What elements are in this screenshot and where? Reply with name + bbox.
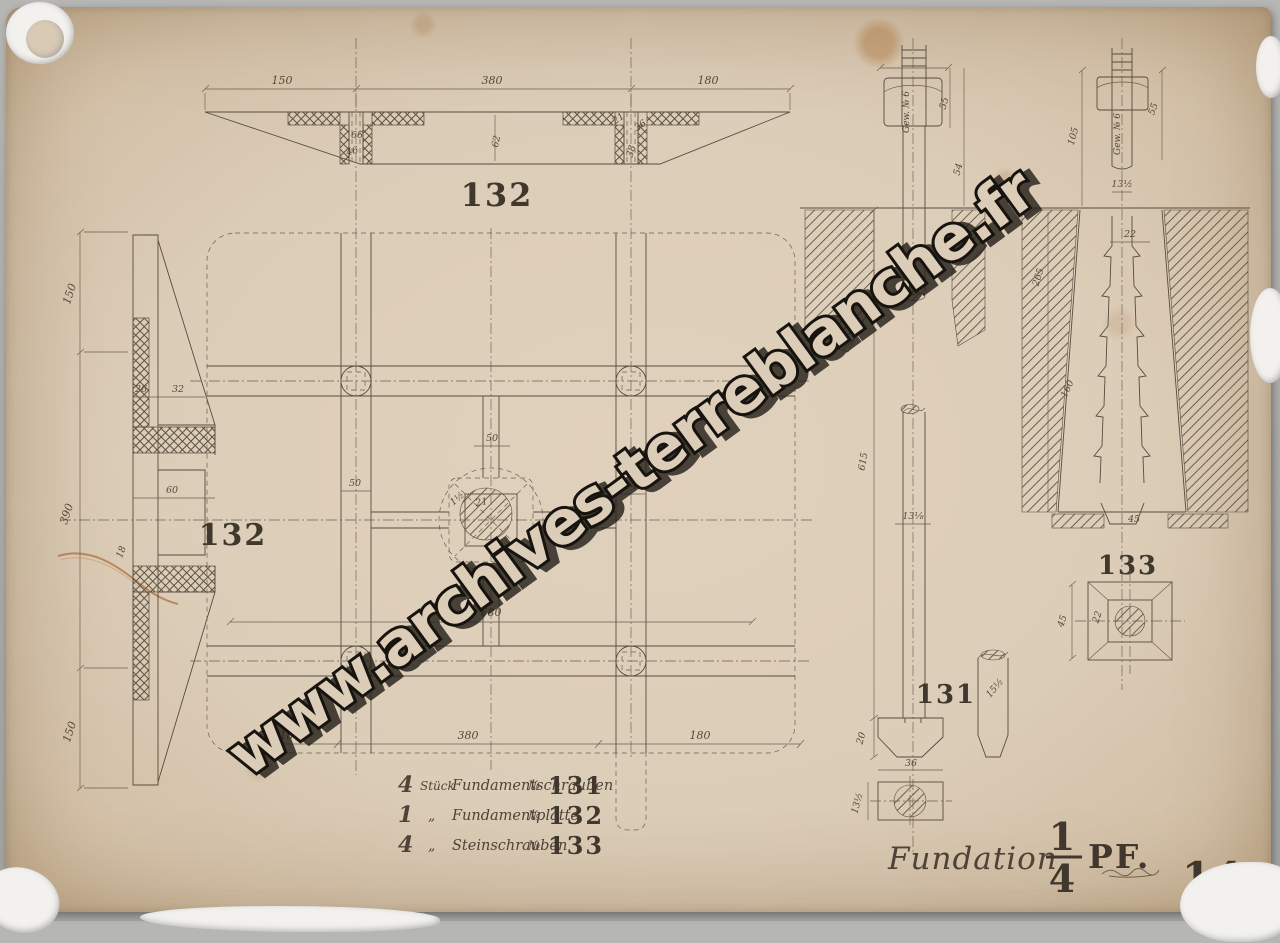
dim-50-center: 50 [486,433,498,444]
dim-150: 150 [272,74,293,87]
dim-55-133: 55 [1146,102,1160,117]
dim-66: 66 [351,130,363,141]
part-label-131: 131 [916,680,976,710]
photo-corner-top-left-hole [26,20,64,58]
row3-no: № [527,839,540,854]
dim-18: 18 [114,545,128,560]
part-label-132-plan: 132 [199,518,268,553]
dim-15-2: 15½ [984,677,1006,700]
dim-62: 62 [490,134,503,148]
parts-schedule: 4 Stück Fundamentschrauben № 131 1 „ Fun… [398,771,613,860]
scale-denominator: 4 [1049,856,1077,901]
dim-54-131: 54 [952,162,966,177]
dim-180: 180 [698,74,719,87]
schedule-row: 4 „ Steinschrauben № 133 [398,831,604,860]
dim-180-right: 180 [690,729,711,742]
dim-13-2-133: 13½ [1111,179,1132,190]
scale-unit: PF. [1088,837,1150,876]
tear-bottom-edge [140,906,440,932]
scale-numerator: 1 [1049,814,1077,859]
row2-qty: 1 [398,802,413,828]
row2-unit: „ [428,808,435,824]
thread-note-131: Gew. № 6 [902,91,912,133]
schedule-row: 4 Stück Fundamentschrauben № 131 [398,771,613,800]
dim-38: 38 [625,144,639,159]
scanned-drawing-page: { "watermark": { "text": "www.archives-t… [0,0,1280,921]
drawing-canvas: 150 380 180 66 46 62 21 36 38 132 150 39… [0,0,1280,921]
dim-32: 32 [172,384,184,395]
dim-55-131: 55 [938,96,952,111]
row2-no: № [527,809,540,824]
part-label-132-section: 132 [461,176,534,214]
dim-150-bottom: 150 [60,720,79,744]
dim-390: 390 [57,502,76,526]
row1-qty: 4 [398,772,413,798]
stone-screw-plan-view: 45 22 [1055,570,1185,674]
dim-45-plan: 45 [1055,614,1070,630]
dim-26: 26 [134,384,147,395]
dim-13-2-131: 13½ [850,792,866,815]
thread-note-133: Gew. № 6 [1113,113,1123,155]
drawing-title: Fundation. [887,841,1069,877]
row3-unit: „ [428,838,435,854]
schedule-row: 1 „ Fundamentplatte № 132 [398,801,604,830]
dim-380: 380 [482,74,503,87]
dim-45-bottom: 45 [1127,514,1140,525]
dim-22-top: 22 [1123,229,1136,240]
row2-num: 132 [548,801,604,830]
row1-unit: Stück [420,779,455,793]
dim-150-top: 150 [60,282,79,306]
dim-60: 60 [166,485,178,496]
dim-380-mid: 380 [458,729,479,742]
dim-22-plan: 22 [1090,610,1105,626]
dim-46: 46 [344,145,359,159]
dim-21-plan: 21 [474,496,489,509]
stone-screw-view: 105 55 Gew. № 6 13½ 22 265 160 45 133 [1020,48,1250,674]
row3-num: 133 [548,831,604,860]
foundation-bolt-view: 55 54 Gew. № 6 615 20 13⅛ 36 13½ 131 [800,45,1008,826]
dim-105: 105 [1066,126,1081,146]
row1-no: № [527,779,540,794]
dim-615: 615 [857,452,871,472]
dim-20: 20 [854,731,868,746]
dim-36-131: 36 [905,758,917,769]
top-section-view: 150 380 180 66 46 62 21 36 38 132 [202,74,794,214]
dim-13-8: 13⅛ [902,511,924,522]
side-view: 150 390 150 26 32 60 18 [57,229,215,791]
dim-50-beam: 50 [349,478,361,489]
row3-qty: 4 [398,832,413,858]
row1-num: 131 [548,771,604,800]
bolt-fragment: 15½ [978,650,1008,757]
tear-right-upper [1256,36,1280,98]
part-label-133: 133 [1098,551,1158,581]
